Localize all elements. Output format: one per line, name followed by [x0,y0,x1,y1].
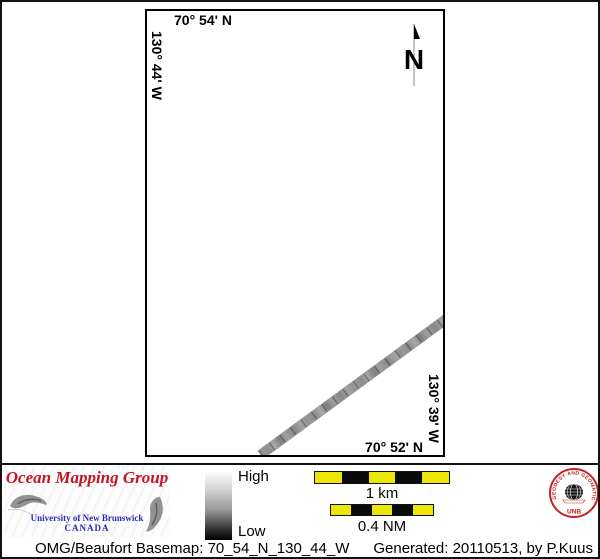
omg-logo-country: CANADA [4,523,170,533]
coordinate-label-north: 70° 54' N [174,12,232,28]
scalebar-segment [342,472,369,483]
gradient-low-label: Low [238,523,266,540]
north-letter: N [404,44,424,75]
scalebar-segment [351,505,371,515]
scalebar-segment [369,472,396,483]
unb-geodesy-seal-icon: GEODESY AND GEOMATICS ENGINEERING UNB [548,467,600,519]
scalebar-segment [331,505,351,515]
scalebar-km [314,471,450,484]
footer-caption: OMG/Beaufort Basemap: 70_54_N_130_44_W G… [35,540,593,557]
scalebar-segment [422,472,449,483]
scalebar-segment [395,472,422,483]
omg-logo: Ocean Mapping Group University of New Br… [4,466,170,537]
map-frame: 70° 54' N 130° 44' W 130° 39' W 70° 52' … [145,9,445,457]
scalebar-segment [372,505,392,515]
depth-gradient-bar [205,472,232,540]
coordinate-label-west: 130° 44' W [149,31,165,100]
omg-logo-title: Ocean Mapping Group [4,468,170,488]
scalebar-segment [413,505,433,515]
seal-unb-text: UNB [567,509,581,516]
scalebar-km-label: 1 km [314,485,450,502]
panel-divider [2,463,600,465]
scalebar-segment [315,472,342,483]
sonar-swath-track [258,314,445,457]
gradient-high-label: High [238,468,269,485]
footer-basemap-id: OMG/Beaufort Basemap: 70_54_N_130_44_W [35,540,349,557]
basemap-page: 70° 54' N 130° 44' W 130° 39' W 70° 52' … [0,0,600,559]
coordinate-label-south: 70° 52' N [365,439,423,455]
scalebar-nm [330,504,434,516]
scalebar-nm-label: 0.4 NM [330,518,434,535]
footer-generated-info: Generated: 20110513, by P.Kuus [373,540,593,557]
coordinate-label-east: 130° 39' W [426,374,442,443]
omg-logo-university: University of New Brunswick [4,513,170,523]
north-arrow-icon: N [400,20,428,90]
scalebar-segment [392,505,412,515]
